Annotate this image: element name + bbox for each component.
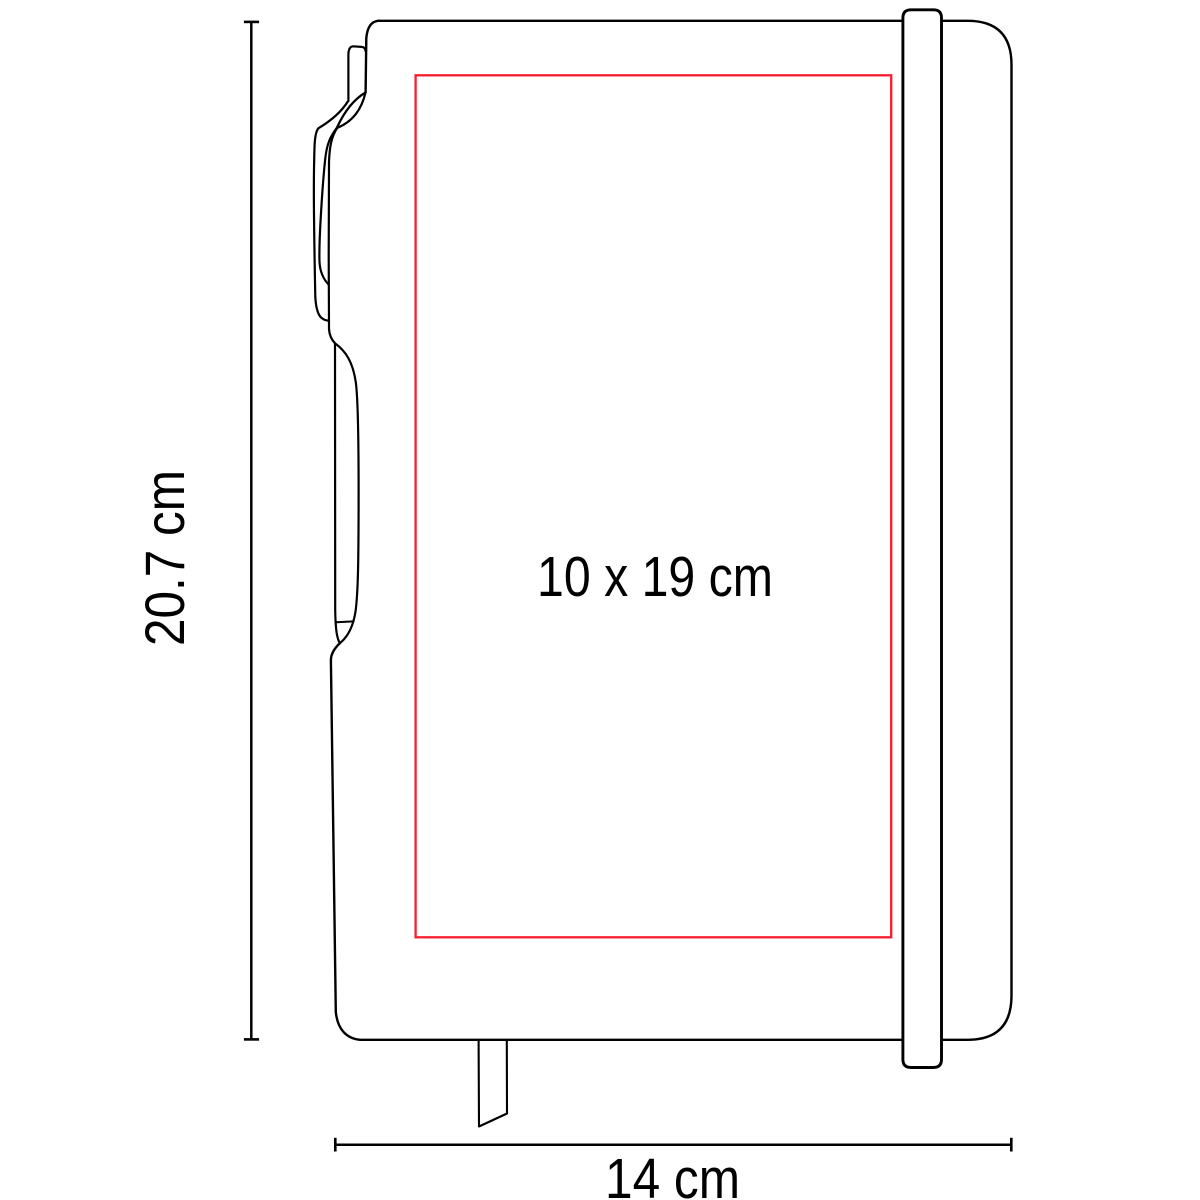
svg-text:14 cm: 14 cm	[605, 1147, 740, 1200]
svg-text:20.7 cm: 20.7 cm	[133, 470, 196, 646]
svg-text:10 x 19 cm: 10 x 19 cm	[537, 545, 773, 608]
